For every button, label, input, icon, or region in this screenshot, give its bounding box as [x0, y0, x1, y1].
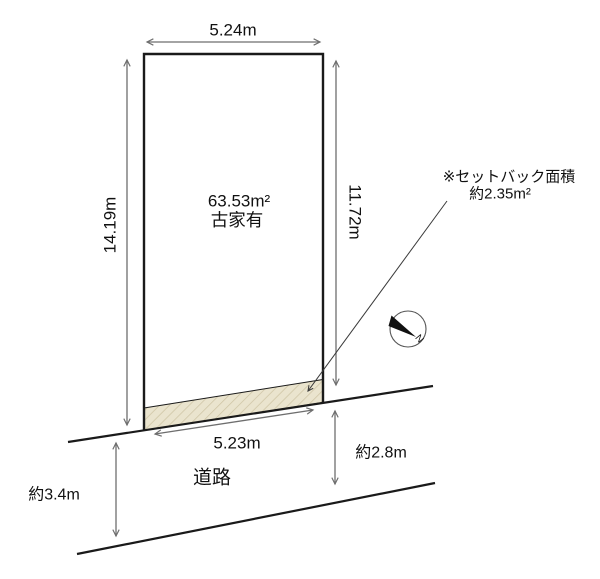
label-plot-area: 63.53m² [208, 192, 271, 211]
label-frontage: 5.23m [213, 434, 260, 453]
label-top-width: 5.24m [209, 21, 256, 40]
setback-leader-line [308, 201, 447, 391]
diagram-canvas: N 5.24m 14.19m 11.72m 63.53m² 古家有 ※セットバッ… [0, 0, 600, 579]
label-road-width-left: 約3.4m [28, 486, 80, 504]
north-compass: N [389, 311, 427, 347]
label-road-width-right: 約2.8m [355, 444, 407, 462]
setback-area [144, 380, 323, 431]
label-road: 道路 [193, 467, 231, 489]
land-plot-diagram: N 5.24m 14.19m 11.72m 63.53m² 古家有 ※セットバッ… [0, 0, 600, 579]
label-setback-note-line2: 約2.35m² [469, 186, 531, 203]
label-left-height: 14.19m [101, 197, 120, 254]
label-right-height: 11.72m [346, 184, 365, 239]
plot-outline [144, 54, 323, 431]
label-building-note: 古家有 [211, 210, 264, 230]
label-setback-note-line1: ※セットバック面積 [443, 169, 576, 186]
road-edge-far [77, 483, 435, 554]
